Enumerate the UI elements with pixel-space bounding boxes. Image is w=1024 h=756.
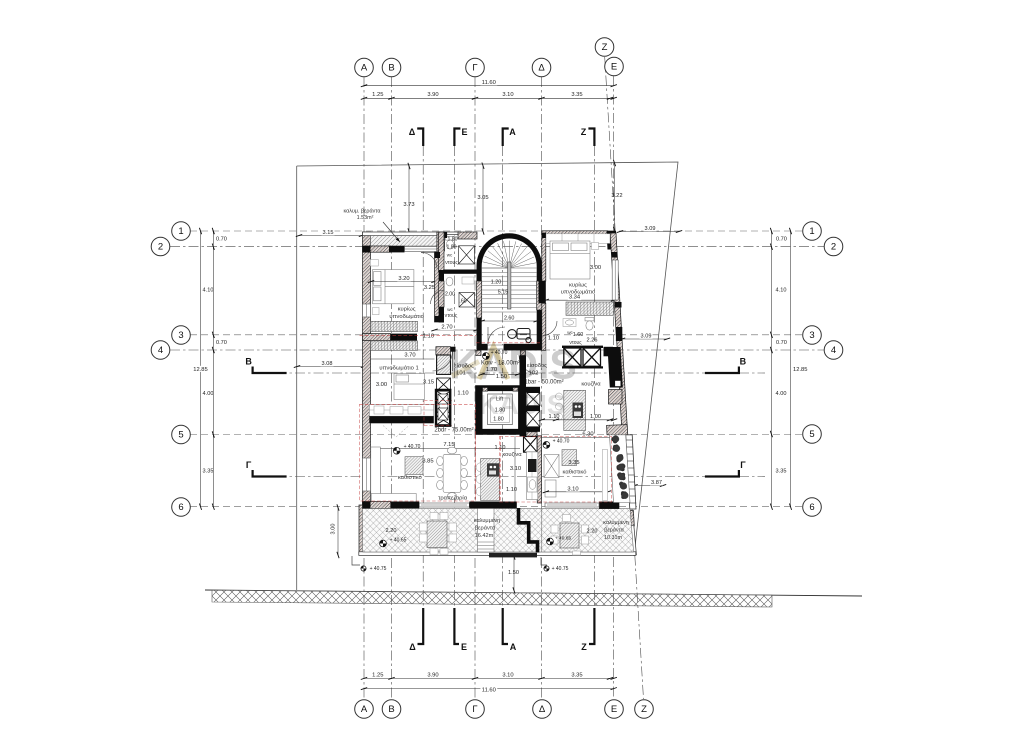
- svg-text:Δ: Δ: [409, 642, 416, 652]
- svg-text:2: 2: [158, 242, 163, 253]
- svg-text:καλυμ. βεράντα: καλυμ. βεράντα: [344, 208, 381, 215]
- svg-text:τραπεζαρία: τραπεζαρία: [438, 496, 468, 502]
- svg-text:3.15: 3.15: [423, 380, 434, 386]
- svg-text:1.80: 1.80: [446, 245, 456, 251]
- svg-text:Γ: Γ: [740, 460, 746, 470]
- svg-text:Γ: Γ: [246, 460, 252, 470]
- svg-text:Γ: Γ: [472, 704, 477, 715]
- svg-text:κουζίνα: κουζίνα: [502, 452, 522, 458]
- svg-text:wc: wc: [447, 252, 453, 257]
- svg-text:3.08: 3.08: [322, 361, 333, 367]
- svg-text:1.10: 1.10: [457, 391, 468, 397]
- svg-text:υπνοδωμάτιο 1: υπνοδωμάτιο 1: [379, 365, 418, 372]
- svg-text:3.10: 3.10: [567, 486, 578, 492]
- svg-text:+ 40.65: + 40.65: [555, 536, 571, 542]
- svg-text:0.70: 0.70: [216, 237, 227, 243]
- svg-text:βεράντα: βεράντα: [475, 525, 496, 532]
- svg-text:3: 3: [178, 330, 183, 341]
- svg-text:B: B: [740, 357, 747, 367]
- svg-text:ντους: ντους: [445, 260, 458, 266]
- svg-text:3.00: 3.00: [590, 265, 601, 271]
- svg-text:.60: .60: [459, 298, 466, 304]
- svg-text:1.00: 1.00: [590, 414, 601, 420]
- svg-text:3.35: 3.35: [568, 460, 579, 466]
- svg-text:4: 4: [158, 345, 163, 356]
- svg-text:3.10: 3.10: [502, 672, 513, 678]
- svg-text:3.00: 3.00: [376, 382, 387, 388]
- svg-text:4.00: 4.00: [203, 391, 214, 397]
- svg-text:2.20: 2.20: [386, 528, 397, 534]
- svg-text:12.85: 12.85: [193, 367, 208, 373]
- svg-text:3.09: 3.09: [641, 333, 652, 339]
- svg-text:10.31m: 10.31m: [604, 535, 622, 541]
- svg-text:4.00: 4.00: [776, 391, 787, 397]
- svg-text:12.85: 12.85: [793, 367, 808, 373]
- svg-text:3.85: 3.85: [422, 459, 433, 465]
- svg-text:0.70: 0.70: [776, 237, 787, 243]
- svg-text:3.05: 3.05: [477, 195, 488, 201]
- svg-text:B: B: [388, 63, 394, 74]
- svg-text:κουζίνα: κουζίνα: [581, 382, 601, 388]
- svg-text:υπνοδωμάτιο: υπνοδωμάτιο: [389, 313, 424, 320]
- svg-text:3.35: 3.35: [203, 469, 214, 475]
- svg-text:3.90: 3.90: [427, 92, 438, 98]
- svg-text:1.20: 1.20: [491, 280, 502, 286]
- svg-text:KADIS: KADIS: [478, 389, 565, 420]
- svg-text:B: B: [245, 357, 252, 367]
- svg-text:6: 6: [178, 502, 183, 513]
- svg-text:3.70: 3.70: [404, 353, 415, 359]
- svg-text:Z: Z: [641, 704, 647, 715]
- svg-text:1.10: 1.10: [495, 445, 506, 451]
- svg-text:1.80: 1.80: [447, 236, 457, 242]
- svg-text:5: 5: [178, 430, 183, 441]
- svg-text:3.87: 3.87: [651, 480, 662, 486]
- svg-text:ντους: ντους: [445, 313, 458, 319]
- svg-text:+ 40.70: + 40.70: [404, 444, 421, 450]
- svg-text:+ 40.75: + 40.75: [370, 566, 387, 572]
- svg-text:E: E: [611, 62, 617, 73]
- svg-text:0.70: 0.70: [776, 340, 787, 346]
- svg-text:4.10: 4.10: [776, 288, 787, 294]
- svg-text:16.42m: 16.42m: [475, 533, 494, 539]
- svg-text:2bdr - 75.00m²: 2bdr - 75.00m²: [434, 428, 473, 434]
- svg-text:6: 6: [809, 502, 814, 513]
- svg-text:καθιστικό: καθιστικό: [398, 474, 422, 481]
- svg-text:1.10: 1.10: [506, 487, 517, 493]
- svg-text:11.60: 11.60: [482, 688, 496, 694]
- svg-text:Z: Z: [602, 42, 608, 53]
- svg-text:καθιστικό: καθιστικό: [563, 469, 587, 476]
- svg-text:1.50: 1.50: [508, 570, 519, 576]
- svg-text:3.34: 3.34: [569, 295, 581, 301]
- svg-text:1.10: 1.10: [423, 333, 434, 339]
- svg-text:1: 1: [809, 226, 814, 237]
- svg-text:3.00: 3.00: [331, 524, 337, 535]
- svg-text:Z: Z: [581, 127, 587, 137]
- svg-text:Δ: Δ: [409, 127, 416, 137]
- svg-text:2: 2: [831, 242, 836, 253]
- svg-text:3.73: 3.73: [403, 202, 414, 208]
- svg-text:2.70: 2.70: [441, 325, 452, 331]
- svg-text:2.60: 2.60: [504, 315, 515, 321]
- svg-text:3.10: 3.10: [502, 92, 513, 98]
- svg-text:4.10: 4.10: [203, 288, 214, 294]
- svg-text:2.20: 2.20: [587, 529, 598, 535]
- svg-text:3.10: 3.10: [510, 466, 521, 472]
- svg-text:1: 1: [178, 226, 183, 237]
- svg-text:B: B: [388, 704, 394, 715]
- svg-text:3.22: 3.22: [611, 193, 622, 199]
- svg-text:1.25: 1.25: [372, 92, 383, 98]
- svg-text:2.26: 2.26: [587, 338, 598, 344]
- svg-text:3.35: 3.35: [571, 672, 582, 678]
- svg-text:E: E: [611, 704, 617, 715]
- svg-text:A: A: [361, 63, 368, 74]
- svg-text:+ 40.70: + 40.70: [553, 439, 570, 445]
- svg-text:0.70: 0.70: [216, 340, 227, 346]
- svg-text:11.60: 11.60: [482, 80, 496, 86]
- svg-text:1.60: 1.60: [573, 332, 584, 338]
- svg-text:4: 4: [831, 345, 836, 356]
- svg-text:κυρίως: κυρίως: [569, 283, 587, 289]
- svg-text:wc: wc: [447, 307, 453, 312]
- svg-text:2.00: 2.00: [445, 292, 455, 298]
- svg-text:A: A: [361, 704, 368, 715]
- svg-text:A: A: [509, 127, 516, 137]
- svg-text:3.25: 3.25: [424, 285, 435, 291]
- svg-text:καλυμμένη: καλυμμένη: [603, 519, 629, 526]
- svg-text:5.15: 5.15: [498, 290, 509, 296]
- svg-text:3.90: 3.90: [427, 672, 438, 678]
- svg-text:3: 3: [809, 330, 814, 341]
- svg-text:3.15: 3.15: [323, 230, 334, 236]
- svg-text:5: 5: [809, 429, 814, 440]
- svg-text:καλυμμένη: καλυμμένη: [474, 517, 501, 524]
- svg-text:Δ: Δ: [539, 704, 546, 715]
- svg-text:3.35: 3.35: [776, 469, 787, 475]
- svg-text:3.35: 3.35: [571, 92, 582, 98]
- svg-text:E: E: [461, 642, 467, 652]
- svg-text:1.25: 1.25: [372, 672, 383, 678]
- svg-text:κυρίως: κυρίως: [398, 307, 416, 313]
- svg-text:+ 40.65: + 40.65: [390, 538, 407, 544]
- svg-text:Z: Z: [581, 642, 587, 652]
- svg-text:βεράντα: βεράντα: [604, 527, 624, 534]
- svg-text:3.09: 3.09: [645, 226, 656, 232]
- svg-text:1.53m²: 1.53m²: [357, 215, 374, 221]
- svg-text:+ 40.75: + 40.75: [552, 566, 569, 572]
- svg-text:3.20: 3.20: [398, 276, 409, 282]
- svg-text:Δ: Δ: [538, 63, 545, 74]
- svg-text:Γ: Γ: [472, 63, 477, 74]
- svg-text:E: E: [461, 127, 467, 137]
- svg-text:A: A: [510, 642, 517, 652]
